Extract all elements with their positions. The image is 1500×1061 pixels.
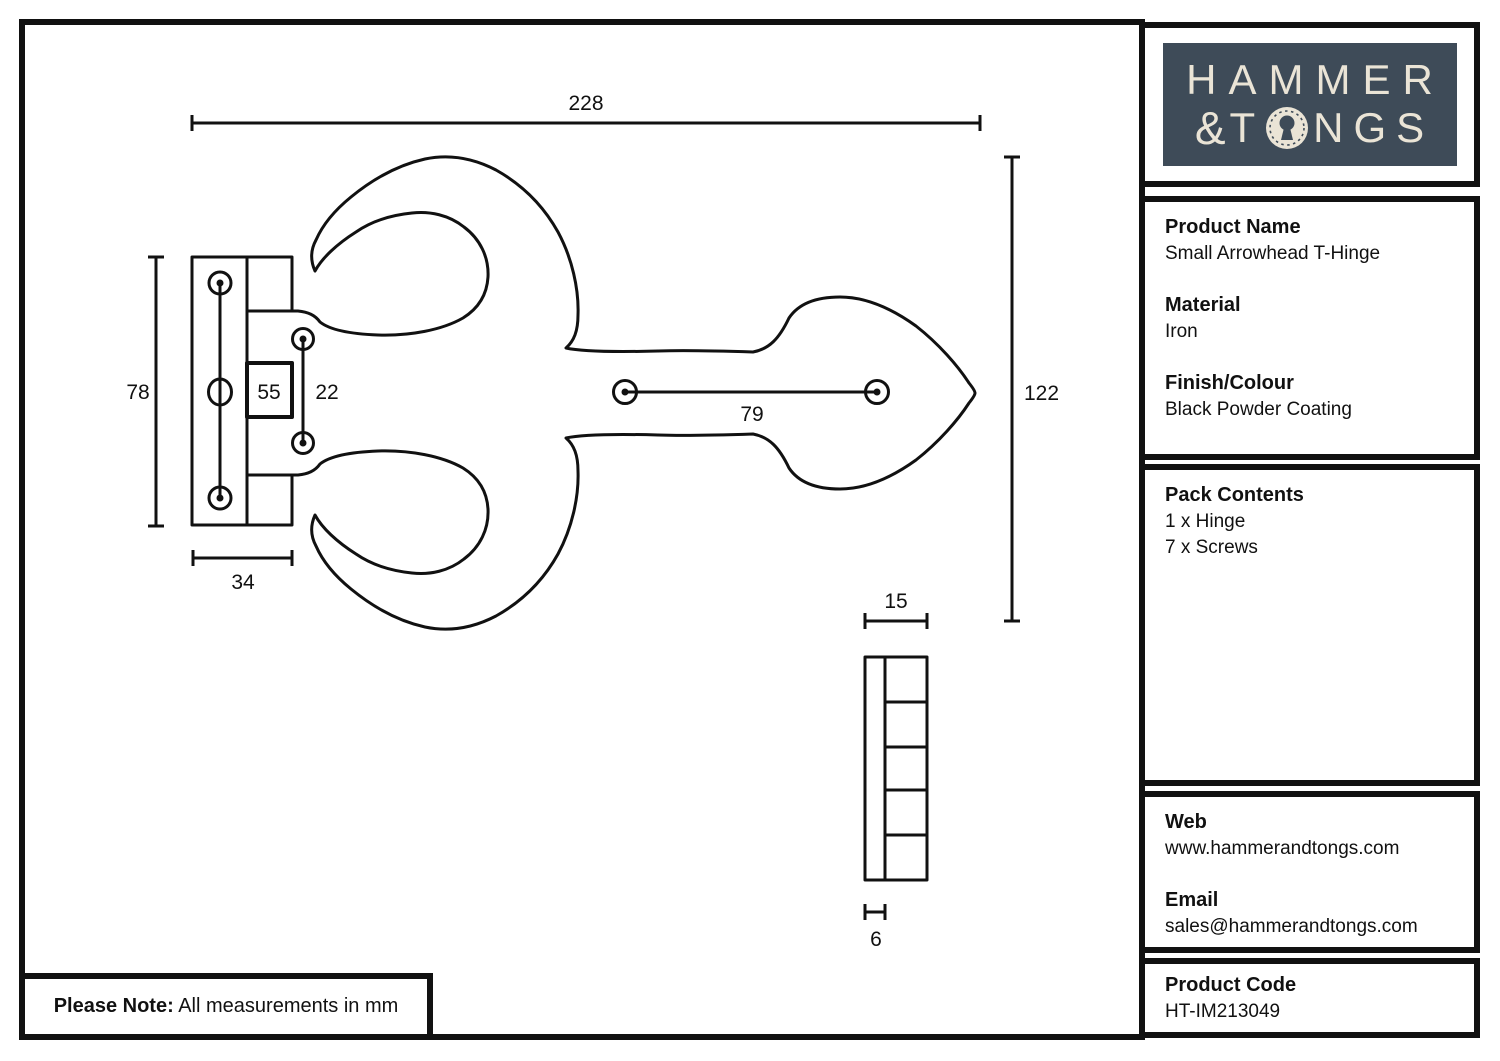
logo-ampersand: & [1195, 104, 1226, 152]
logo-box: HAMMER &T NGS [1139, 22, 1480, 187]
pack-item-hinge: 1 x Hinge [1165, 509, 1454, 535]
dim-right-height: 122 [1004, 157, 1059, 621]
technical-drawing: 228 122 78 34 55 [19, 19, 1145, 1040]
dim-label-79: 79 [740, 403, 763, 426]
dim-total-width: 228 [192, 92, 980, 131]
web-label: Web [1165, 809, 1454, 836]
dim-plate-width: 34 [193, 550, 292, 594]
plate-screws [209, 272, 232, 509]
product-name-value: Small Arrowhead T-Hinge [1165, 241, 1454, 267]
product-info-box: Product Name Small Arrowhead T-Hinge Mat… [1139, 196, 1480, 460]
material-value: Iron [1165, 319, 1454, 345]
dim-label-15: 15 [884, 590, 907, 613]
dim-label-34: 34 [231, 571, 255, 594]
dim-plate-height: 78 [126, 257, 164, 526]
contact-box: Web www.hammerandtongs.com Email sales@h… [1139, 791, 1480, 953]
email-label: Email [1165, 887, 1454, 914]
dim-label-55: 55 [257, 381, 280, 404]
product-code-label: Product Code [1165, 972, 1454, 999]
dim-side-width: 15 [865, 590, 927, 629]
logo-letter-t: T [1230, 104, 1266, 152]
dim-label-228: 228 [568, 92, 603, 115]
spec-sheet-page: 228 122 78 34 55 [0, 0, 1500, 1061]
dim-label-122: 122 [1024, 382, 1059, 405]
pack-item-screws: 7 x Screws [1165, 535, 1454, 561]
logo-letters-ngs: NGS [1313, 104, 1434, 152]
dim-label-78: 78 [126, 381, 149, 404]
arm-screws: 22 [293, 329, 339, 454]
logo-line2: &T NGS [1195, 104, 1424, 152]
pack-contents-box: Pack Contents 1 x Hinge 7 x Screws [1139, 464, 1480, 786]
dim-label-22: 22 [315, 381, 338, 404]
dim-side-thickness: 6 [865, 904, 885, 951]
note-label: Please Note: [54, 995, 174, 1018]
keyhole-icon [1265, 106, 1309, 150]
email-value: sales@hammerandtongs.com [1165, 914, 1454, 940]
logo-line1: HAMMER [1186, 58, 1445, 102]
pack-contents-label: Pack Contents [1165, 482, 1454, 509]
product-name-label: Product Name [1165, 214, 1454, 241]
strap-screws: 79 [614, 381, 889, 427]
material-label: Material [1165, 292, 1454, 319]
note-text: All measurements in mm [174, 995, 399, 1018]
finish-label: Finish/Colour [1165, 370, 1454, 397]
product-code-value: HT-IM213049 [1165, 999, 1454, 1025]
finish-value: Black Powder Coating [1165, 397, 1454, 423]
measurement-note: Please Note: All measurements in mm [19, 973, 433, 1040]
hammer-and-tongs-logo: HAMMER &T NGS [1163, 43, 1457, 166]
web-value: www.hammerandtongs.com [1165, 836, 1454, 862]
product-code-box: Product Code HT-IM213049 [1139, 958, 1480, 1038]
side-view [865, 657, 927, 880]
dim-label-6: 6 [870, 928, 882, 951]
